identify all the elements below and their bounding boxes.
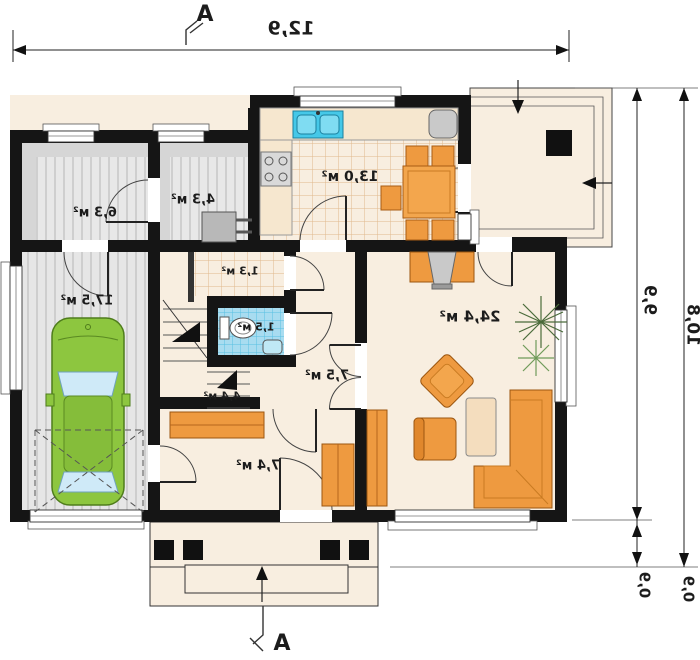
dimension-right-inner-lower: 0,9 (637, 572, 652, 599)
porch-column (349, 540, 369, 560)
room-label-hall: 7,5 м² (305, 370, 349, 383)
room-label-utility: 6,3 м² (73, 207, 117, 220)
car-roof (64, 396, 112, 472)
kitchen-sink (293, 111, 343, 138)
room-label-pantry: 1,3 м² (221, 266, 258, 277)
chair (406, 220, 428, 240)
dimension-right-inner: 9,9 (641, 285, 658, 315)
armchair (414, 418, 456, 460)
room-label-kitchen: 13,0 м² (322, 170, 379, 184)
porch-column (320, 540, 340, 560)
garage-window (1, 262, 22, 394)
utility-window (43, 124, 99, 142)
porch-column (154, 540, 174, 560)
stove (261, 152, 291, 186)
living-front-window (388, 510, 537, 530)
dimension-total-width: 12,9 (268, 20, 315, 39)
car-mirror (46, 394, 54, 406)
chair (381, 186, 401, 210)
wc-sink (263, 340, 282, 354)
fridge (429, 110, 457, 138)
porch-column (183, 540, 203, 560)
section-marker-bottom: A (273, 633, 290, 655)
chimney (546, 130, 572, 156)
floor-plan: A A 12,9 9,9 10,8 0,9 0,9 17,5 м² 6,3 м²… (0, 0, 700, 660)
chair (406, 146, 428, 166)
coffee-table (466, 398, 496, 456)
living-side-window (555, 306, 576, 406)
room-label-boiler: 4,3 м² (171, 194, 215, 207)
room-label-entrance: 7,4 м² (236, 460, 280, 473)
room-label-garage: 17,5 м² (61, 295, 114, 308)
car-windshield (58, 372, 118, 396)
utility-floor (22, 143, 148, 240)
garage-door (28, 510, 144, 529)
kitchen-side-window (458, 210, 479, 244)
kitchen-window (294, 87, 401, 107)
kitchen-counter (260, 108, 458, 140)
room-label-wc: 1,5 м² (237, 322, 274, 333)
dimension-right-outer-lower: 0,9 (681, 576, 696, 603)
car-rear-window (58, 472, 118, 492)
chair (432, 220, 454, 240)
room-label-living: 24,4 м² (439, 310, 500, 325)
car-mirror (122, 394, 130, 406)
floor-plan-drawing (0, 0, 700, 660)
car (46, 318, 130, 505)
chair (432, 146, 454, 166)
dining-table (403, 166, 455, 218)
entrance-porch (150, 522, 378, 606)
dimension-right-outer: 10,8 (684, 304, 700, 346)
room-label-stairs: 4,4 м² (203, 391, 240, 402)
boiler-window (153, 124, 209, 142)
terrace (470, 80, 612, 247)
section-marker-top: A (196, 4, 213, 26)
